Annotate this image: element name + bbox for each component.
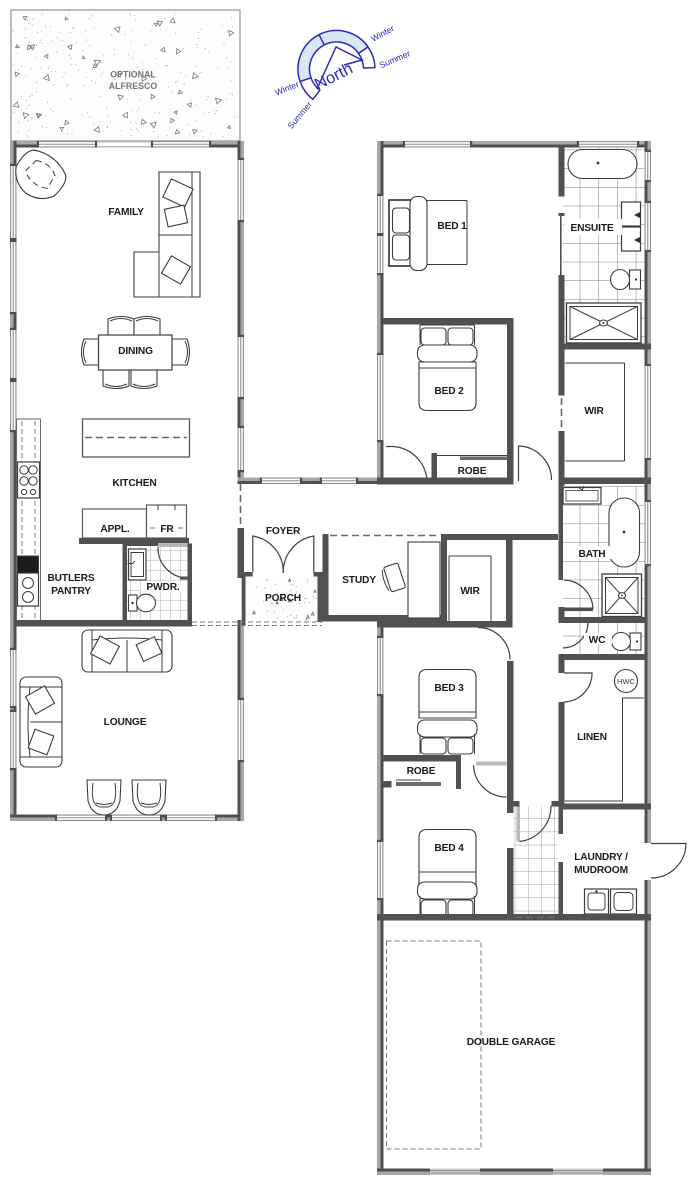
svg-text:ALFRESCO: ALFRESCO bbox=[109, 81, 158, 91]
svg-text:WIR: WIR bbox=[460, 586, 480, 597]
svg-text:STUDY: STUDY bbox=[342, 575, 376, 586]
svg-text:FOYER: FOYER bbox=[266, 526, 301, 537]
svg-text:BED 1: BED 1 bbox=[437, 221, 467, 232]
svg-text:ENSUITE: ENSUITE bbox=[570, 223, 613, 234]
svg-text:FAMILY: FAMILY bbox=[108, 207, 144, 218]
svg-text:DINING: DINING bbox=[118, 346, 153, 357]
svg-text:BED 2: BED 2 bbox=[434, 386, 464, 397]
svg-text:BED 4: BED 4 bbox=[434, 843, 464, 854]
svg-text:PANTRY: PANTRY bbox=[51, 586, 91, 597]
svg-text:OPTIONAL: OPTIONAL bbox=[110, 70, 156, 80]
svg-text:KITCHEN: KITCHEN bbox=[112, 478, 156, 489]
svg-text:PORCH: PORCH bbox=[265, 593, 301, 604]
svg-text:APPL.: APPL. bbox=[100, 524, 130, 535]
svg-text:ROBE: ROBE bbox=[458, 466, 487, 477]
svg-text:WIR: WIR bbox=[584, 406, 604, 417]
svg-text:LINEN: LINEN bbox=[577, 732, 607, 743]
svg-text:FR: FR bbox=[160, 524, 174, 535]
svg-text:BATH: BATH bbox=[579, 549, 606, 560]
svg-text:DOUBLE GARAGE: DOUBLE GARAGE bbox=[467, 1037, 556, 1048]
svg-text:LOUNGE: LOUNGE bbox=[104, 717, 147, 728]
svg-text:HWC: HWC bbox=[617, 677, 635, 686]
svg-text:PWDR.: PWDR. bbox=[146, 582, 180, 593]
svg-text:LAUNDRY /: LAUNDRY / bbox=[574, 852, 628, 863]
svg-text:MUDROOM: MUDROOM bbox=[574, 865, 628, 876]
svg-text:BED 3: BED 3 bbox=[434, 683, 464, 694]
svg-text:WC: WC bbox=[589, 635, 606, 646]
svg-text:ROBE: ROBE bbox=[407, 766, 436, 777]
svg-text:BUTLERS: BUTLERS bbox=[47, 573, 94, 584]
